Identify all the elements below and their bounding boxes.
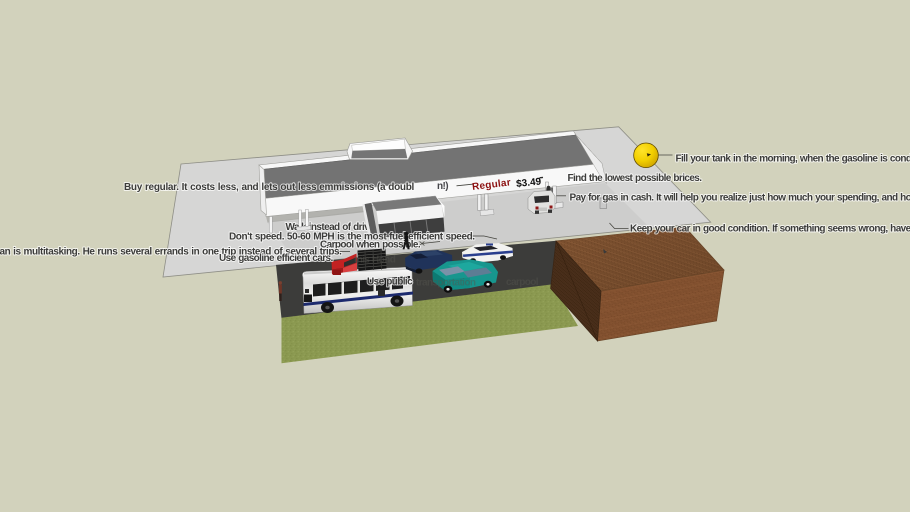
svg-text:Keep your car in good conditio: Keep your car in good condition. If some… <box>630 224 910 235</box>
svg-text:n!): n!) <box>437 181 448 192</box>
svg-text:Fill your tank in the morning,: Fill your tank in the morning, when the … <box>676 153 910 164</box>
svg-text:this Hond: this Hond <box>354 255 396 266</box>
svg-text:Use gasoline efficient cars.: Use gasoline efficient cars. <box>219 253 333 264</box>
svg-text:Find the lowest possible brice: Find the lowest possible brices. <box>568 173 703 184</box>
svg-text:carpool: carpool <box>506 277 539 288</box>
svg-text:Pay for gas in cash. It will h: Pay for gas in cash. It will help you re… <box>570 193 910 204</box>
svg-text:Buy regular. It costs less, an: Buy regular. It costs less, and lets out… <box>124 182 415 193</box>
svg-text:Use public: Use public <box>367 277 413 288</box>
svg-text:transportation: transportation <box>416 278 476 289</box>
